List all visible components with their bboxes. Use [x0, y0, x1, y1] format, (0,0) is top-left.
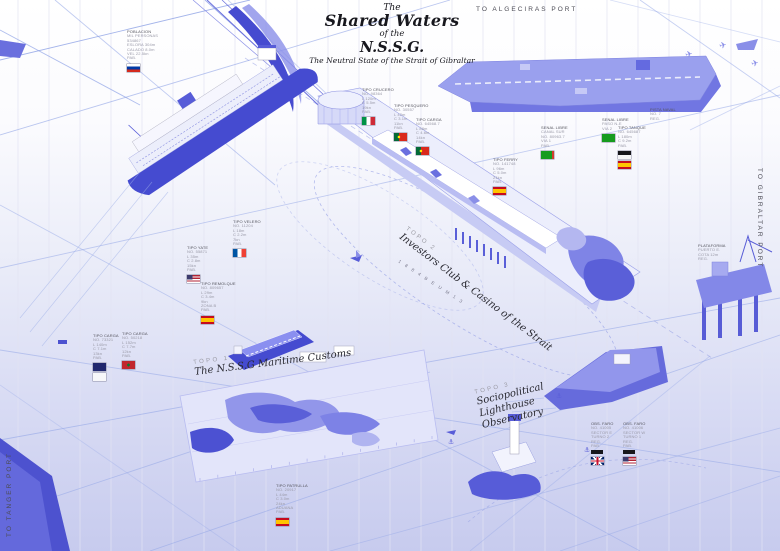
vessel-data-marker: SENAL LIBRECANAL SURNO. 80963.7VIA 1PAB. — [541, 126, 585, 159]
vessel-data-marker: OBS. FARONO. 41006SECTOR WTURNO 1REG.PAB… — [623, 422, 667, 465]
map-canvas: 1 8 8 4 B E U M 1 3 — [0, 0, 780, 551]
vessel-data-marker: TIPO VELERONO. 11204L 18mC 2.2m7knPAB. — [233, 220, 277, 257]
vessel-data-marker: TIPO YATENO. 55871L 35mC 2.8m15knPAB. — [187, 246, 231, 283]
vessel-stat-lines: TIPO CARGANO. 50218L 152mC 7.7m12knPAB. — [122, 332, 166, 358]
vessel-stat-lines: SENAL LIBRECANAL SURNO. 80963.7VIA 1PAB. — [541, 126, 585, 148]
spain-flag-icon — [201, 316, 214, 324]
uk-flag-icon — [591, 457, 604, 465]
port-label-gibraltar: TO GIBRALTAR PORT — [756, 168, 763, 268]
title-mid: of the — [292, 30, 492, 39]
vessel-data-marker: TIPO TANQUENO. 645687L 180mC 9.2mPAB. — [618, 126, 662, 169]
redacted-label-bar — [623, 450, 635, 454]
title-acronym: N.S.S.G. — [292, 40, 492, 55]
scene-illustration: 1 8 8 4 B E U M 1 3 — [0, 0, 780, 551]
vessel-data-marker: PISTA NAVALNO. 7REG. — [650, 108, 694, 121]
anchor-icon: ⚓ — [556, 393, 562, 400]
portugal-flag-icon — [416, 147, 429, 155]
france-flag-icon — [233, 249, 246, 257]
title-subtitle: The Neutral State of the Strait of Gibra… — [292, 57, 492, 65]
greenred-flag-icon — [541, 151, 554, 159]
russia-flag-icon — [127, 64, 140, 72]
port-label-tanger: TO TANGER PORT — [6, 452, 13, 537]
vessel-stat-lines: PLATAFORMAPUERTO E.COTA 12mREG. — [698, 244, 742, 262]
vessel-stat-lines: POBLACIONMIL PERSONAS534867ESLORA 304mCA… — [127, 30, 171, 61]
map-title: The Shared Waters of the N.S.S.G. The Ne… — [292, 4, 492, 65]
vessel-data-marker: PLATAFORMAPUERTO E.COTA 12mREG. — [698, 244, 742, 262]
corner-skiff — [0, 40, 26, 58]
vessel-stat-lines: TIPO YATENO. 55871L 35mC 2.8m15knPAB. — [187, 246, 231, 272]
spain-flag-icon — [493, 187, 506, 195]
green-flag-icon — [602, 134, 615, 142]
airplane-icon: ✈ — [684, 48, 694, 60]
vessel-data-marker: POBLACIONMIL PERSONAS534867ESLORA 304mCA… — [127, 30, 171, 72]
italy-flag-icon — [362, 117, 375, 125]
port-label-algeciras: TO ALGECIRAS PORT — [476, 6, 577, 13]
portugal-flag-icon — [394, 133, 407, 141]
vessel-data-marker: TIPO CARGANO. 50218L 152mC 7.7m12knPAB. — [122, 332, 166, 369]
vessel-stat-lines: TIPO REMOLQUENO. 809657L 29mC 3.4m9knZON… — [201, 282, 245, 313]
spain-flag-icon — [618, 161, 631, 169]
vessel-data-marker: TIPO PATRULLANO. 20917L 44mC 3.0m24knADU… — [276, 484, 320, 526]
usa-flag-icon — [623, 457, 636, 465]
vessel-stat-lines: OBS. FARONO. 41006SECTOR WTURNO 1REG.PAB… — [623, 422, 667, 448]
redacted-label-bar — [591, 450, 603, 454]
vessel-stat-lines: TIPO TANQUENO. 645687L 180mC 9.2mPAB. — [618, 126, 662, 148]
navy-flag-icon — [93, 363, 106, 371]
blackwhite-flag-icon — [618, 151, 631, 159]
spain-flag-icon — [276, 518, 289, 526]
title-main: Shared Waters — [292, 13, 492, 30]
morocco-flag-icon — [122, 361, 135, 369]
usa-flag-icon — [187, 275, 200, 283]
white-flag-icon — [93, 373, 106, 381]
anchor-icon: ⚓ — [584, 447, 590, 454]
vessel-data-marker: TIPO REMOLQUENO. 809657L 29mC 3.4m9knZON… — [201, 282, 245, 324]
vessel-stat-lines: TIPO CARGANO. 64568.7L 88mC 4.6m14knPAB. — [416, 118, 460, 144]
vessel-stat-lines: TIPO VELERONO. 11204L 18mC 2.2m7knPAB. — [233, 220, 277, 246]
vessel-data-marker: TIPO FERRYNO. 141748L 96mC 5.0m21knPAB. — [493, 158, 537, 195]
lighthouse-observatory — [468, 414, 541, 500]
vessel-data-marker: TIPO CARGANO. 64568.7L 88mC 4.6m14knPAB. — [416, 118, 460, 155]
airplane-icon: ✈ — [718, 39, 728, 51]
vessel-stat-lines: PISTA NAVALNO. 7REG. — [650, 108, 694, 121]
vessel-stat-lines: TIPO PATRULLANO. 20917L 44mC 3.0m24knADU… — [276, 484, 320, 515]
airplane-icon: ✈ — [750, 57, 760, 69]
anchor-icon: ⚓ — [448, 439, 454, 446]
vessel-stat-lines: TIPO FERRYNO. 141748L 96mC 5.0m21knPAB. — [493, 158, 537, 184]
